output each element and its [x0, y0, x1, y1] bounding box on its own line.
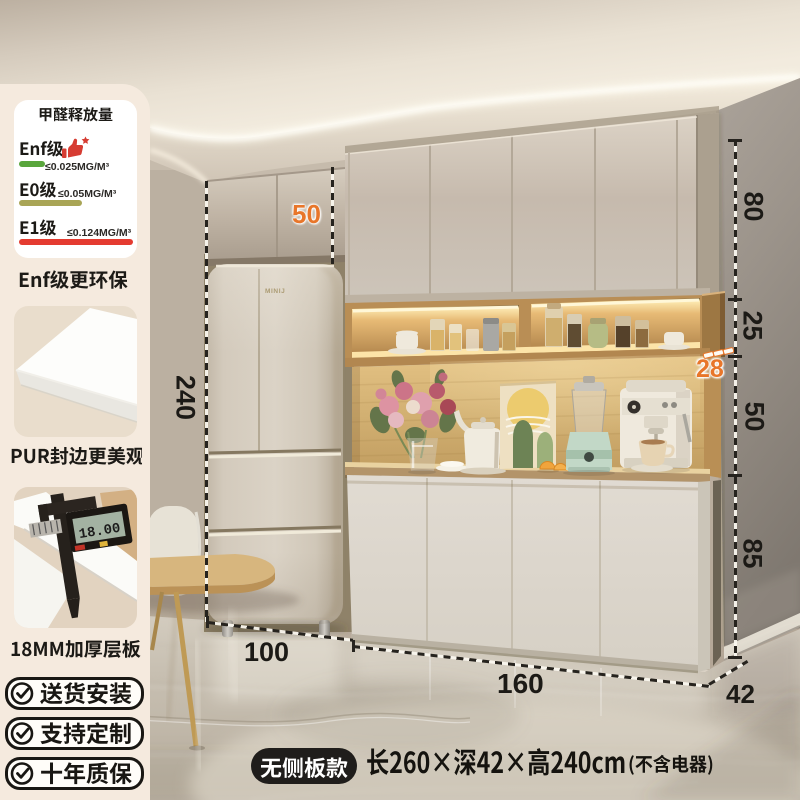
svg-text:≤0.124MG/M³: ≤0.124MG/M³: [67, 227, 132, 239]
svg-text:≤0.05MG/M³: ≤0.05MG/M³: [58, 188, 117, 200]
svg-text:≤0.025MG/M³: ≤0.025MG/M³: [45, 161, 110, 173]
